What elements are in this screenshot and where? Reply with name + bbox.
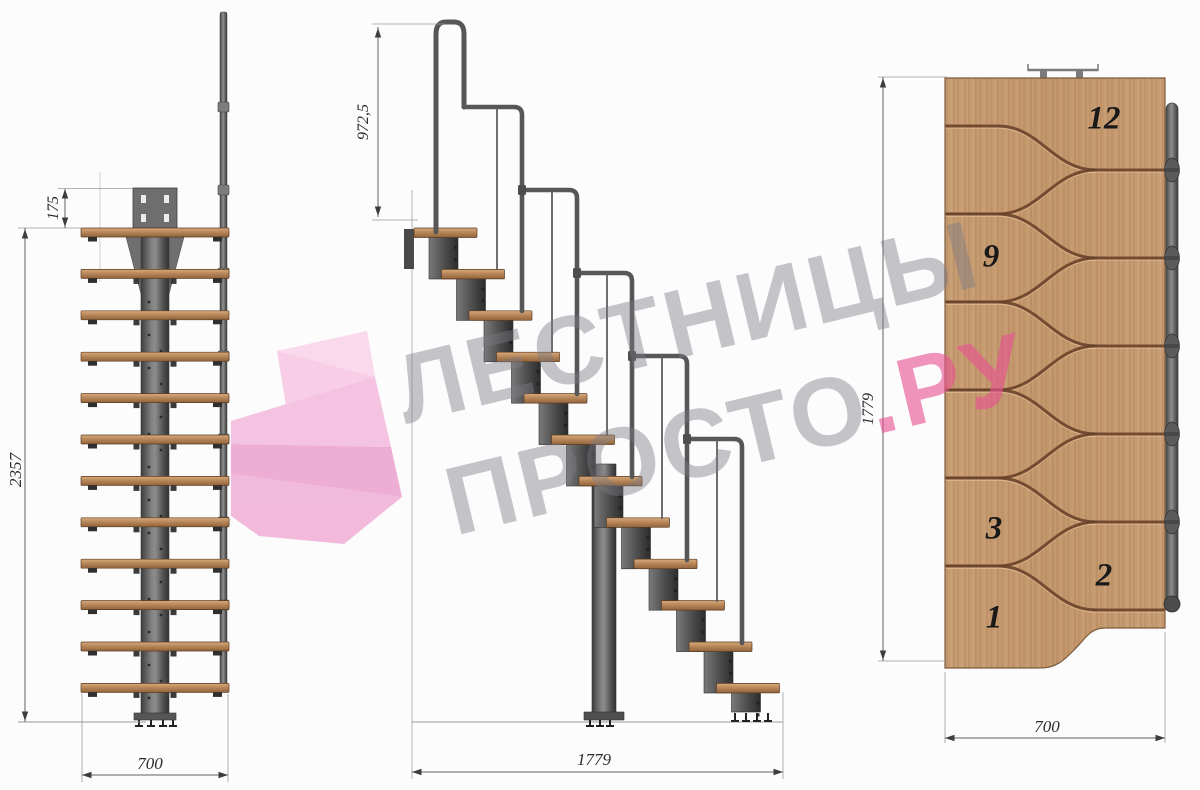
dimension-total-height: 2357: [6, 453, 26, 487]
dimension-handrail-height: 972,5: [355, 104, 373, 140]
plan-step-number-9: 9: [983, 239, 1000, 276]
top-mounting-plate: [133, 188, 177, 228]
handrail-top-loop: [436, 22, 464, 232]
column-base-plate: [134, 713, 176, 720]
dimension-plate-offset: 175: [45, 196, 63, 220]
side-column-base: [584, 712, 624, 720]
dimension-side-length: 1779: [577, 750, 611, 770]
dimension-plan-length: 1779: [860, 393, 878, 425]
side-wall-plate: [404, 229, 414, 269]
front-view: [18, 12, 229, 782]
plan-step-number-12: 12: [1088, 101, 1121, 138]
staircase-drawing-canvas: ЛЕСТНИЦЫ ПРОСТО.РУ 175 2357 700 972,5 17…: [0, 0, 1200, 790]
dimension-plan-width: 700: [1034, 717, 1060, 737]
plan-handrail-end: [1164, 596, 1180, 612]
base-anchor-bolts: [135, 720, 177, 727]
dimension-front-width: 700: [137, 754, 163, 774]
plan-step-number-2: 2: [1096, 558, 1113, 595]
brand-logo: [231, 331, 402, 544]
plan-step-number-3: 3: [986, 511, 1003, 548]
plan-step-number-1: 1: [986, 600, 1003, 637]
